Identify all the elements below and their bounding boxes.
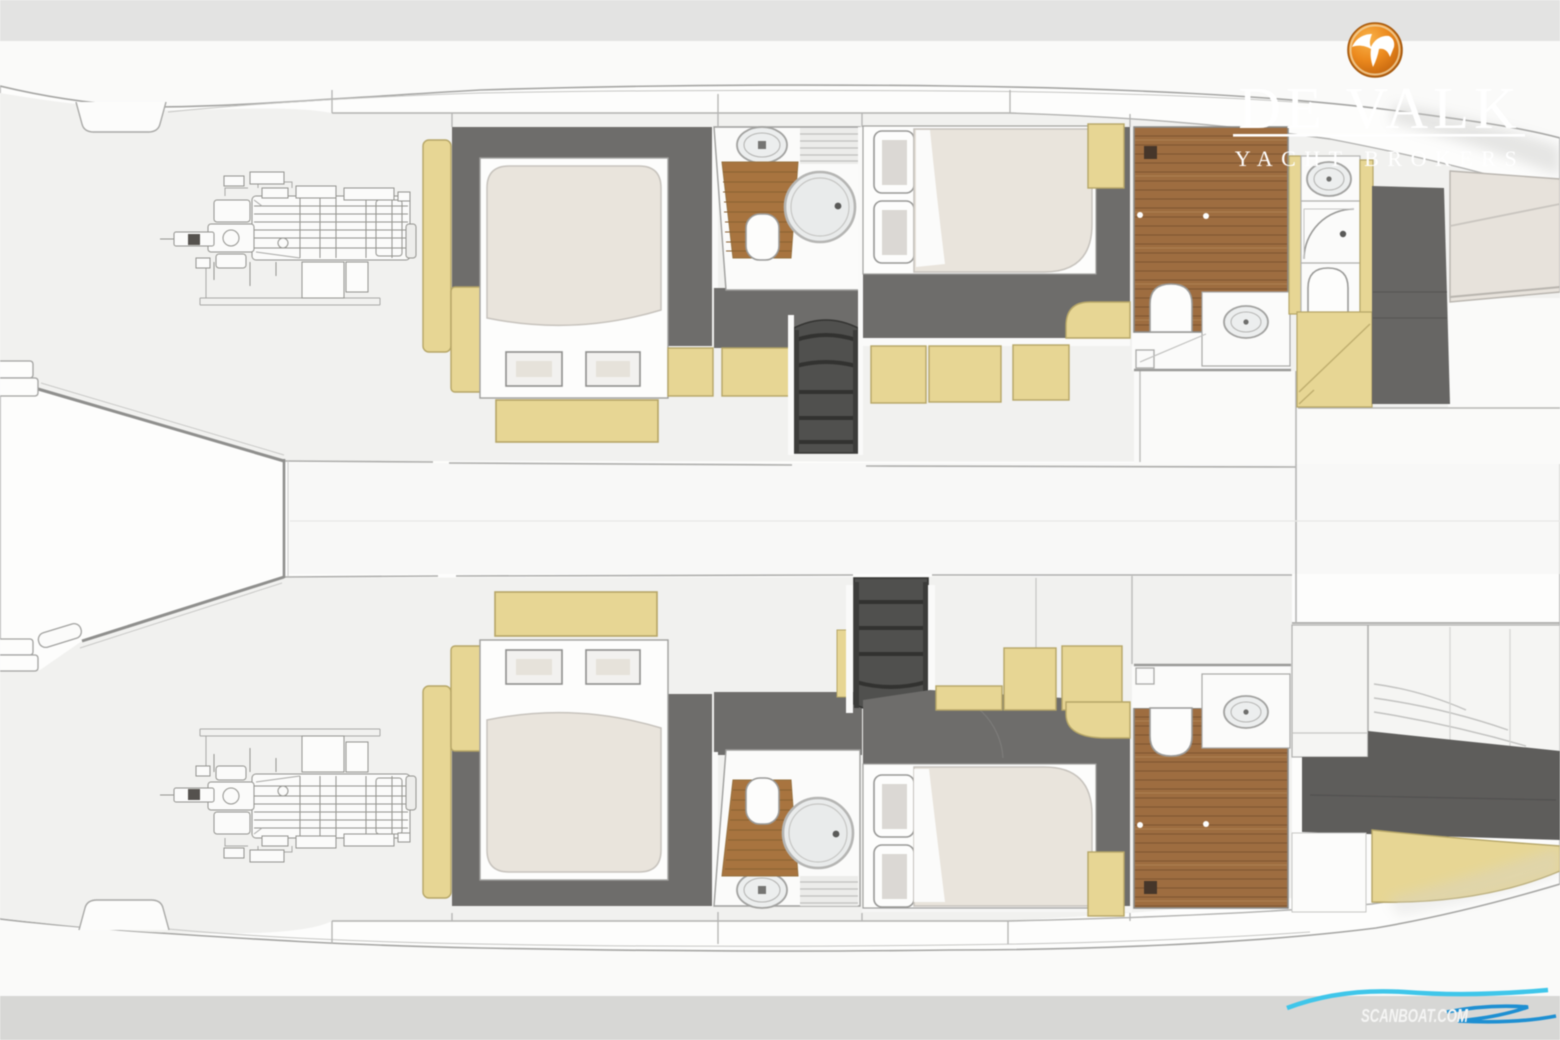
svg-text:SCANBOAT.COM: SCANBOAT.COM [1361, 1005, 1468, 1026]
svg-text:YACHT BROKERS: YACHT BROKERS [1235, 146, 1525, 171]
svg-text:DE VALK: DE VALK [1238, 75, 1522, 141]
